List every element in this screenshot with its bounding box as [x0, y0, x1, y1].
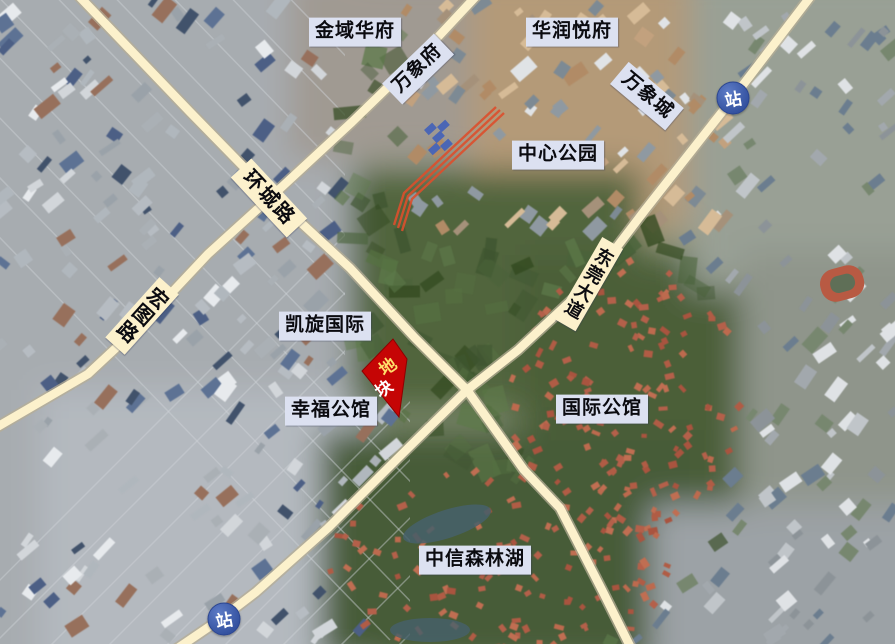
- station-badge-top: 站: [717, 82, 750, 115]
- place-label-guoji-gongguan: 国际公馆: [556, 395, 648, 424]
- place-label-zhongxin-senlinhu: 中信森林湖: [419, 546, 531, 575]
- place-label-zhongxin-gongyuan: 中心公园: [512, 141, 604, 170]
- place-label-kaixuan-guoji: 凯旋国际: [279, 312, 371, 341]
- satellite-map: 金域华府 华润悦府 万象府 万象城 中心公园 凯旋国际 幸福公馆 国际公馆 中信…: [0, 0, 895, 644]
- place-label-huarun-yuefu: 华润悦府: [526, 18, 618, 47]
- place-label-xingfu-gongguan: 幸福公馆: [285, 397, 377, 426]
- station-badge-top-label: 站: [722, 84, 743, 112]
- station-badge-bottom-label: 站: [213, 605, 234, 633]
- place-label-jinyu-huafu: 金域华府: [309, 18, 401, 47]
- station-badge-bottom: 站: [208, 603, 241, 636]
